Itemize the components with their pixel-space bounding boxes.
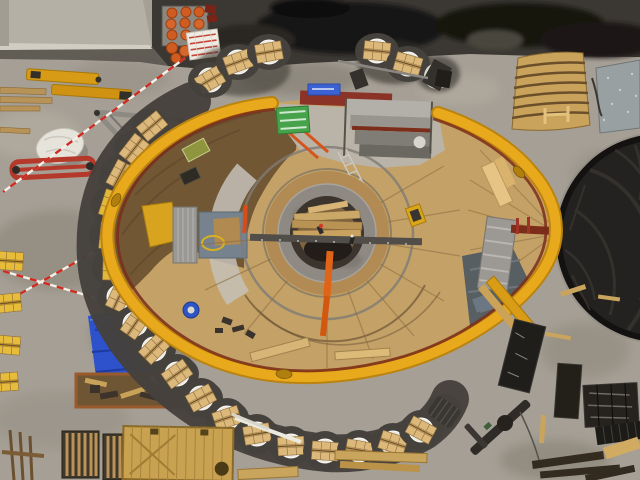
slat-rack-1: [62, 431, 99, 478]
top-right-stacks: [512, 52, 640, 133]
green-wrapped-pallet: [276, 106, 310, 134]
wrapped-stack-b: [554, 363, 582, 419]
cable-reel-hub: [188, 307, 195, 314]
curved-timber-stack: [512, 52, 590, 130]
round-pad-3: [247, 34, 291, 70]
aerial-photo: [0, 0, 640, 480]
slab-side: [0, 0, 9, 46]
wooden-container: [123, 426, 234, 480]
wrapped-stack-c: [583, 383, 639, 428]
steel-plate-stack: [592, 60, 640, 133]
roof-slab: [0, 0, 152, 50]
screenshot-root: [0, 0, 640, 480]
